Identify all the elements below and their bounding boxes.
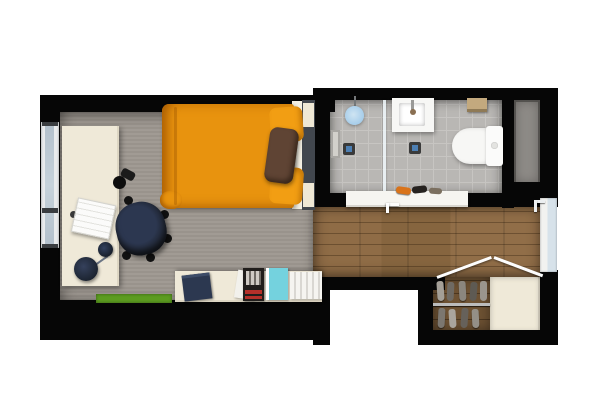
nightstand-top <box>303 103 314 127</box>
window-mullion-top <box>42 122 58 126</box>
drain-grate <box>346 146 352 152</box>
white-book-row <box>290 272 322 299</box>
window-pane <box>45 125 54 245</box>
navy-books <box>182 272 213 301</box>
shoe <box>469 282 477 301</box>
shoe <box>460 308 468 328</box>
flush-button <box>491 142 498 149</box>
shower-drain <box>343 143 355 155</box>
hallway-wood-floor <box>313 205 542 277</box>
faucet-handle <box>410 109 416 115</box>
closet-cabinet <box>490 277 540 332</box>
door-handle <box>534 200 548 214</box>
shoe-gray <box>429 188 442 195</box>
camera <box>113 169 137 189</box>
sneaker-orange <box>396 186 412 195</box>
shoe <box>437 308 445 328</box>
duvet-fold <box>160 191 182 209</box>
desk-lamp <box>74 240 114 286</box>
wall-hook <box>386 203 402 213</box>
shoes-on-bench <box>396 183 446 199</box>
magazine-red-title <box>245 290 262 294</box>
nightstand-bottom <box>303 183 314 207</box>
floor-drain <box>409 142 421 154</box>
service-shaft <box>514 100 540 184</box>
closet-rail <box>433 303 490 306</box>
window-mullion-middle <box>42 208 58 213</box>
shoe <box>480 281 487 301</box>
wall-bathroom-top <box>313 88 558 100</box>
cyan-book <box>266 268 288 300</box>
wall-right-top <box>540 88 558 198</box>
shoe-black <box>412 185 428 194</box>
shoe <box>448 309 456 328</box>
shoe <box>472 309 480 328</box>
shower-glass-partition <box>383 100 386 195</box>
lamp-base <box>74 257 98 281</box>
magazine-red-title <box>245 296 262 299</box>
shoe <box>436 281 444 301</box>
handle-stem <box>534 200 537 212</box>
toilet-shelf <box>467 98 487 112</box>
wall-bathroom-shaft <box>502 88 514 208</box>
shower-head <box>345 106 364 125</box>
duvet-crease <box>174 107 177 205</box>
magazine-photo <box>246 271 261 285</box>
hook-drop <box>386 203 389 213</box>
drain-grate <box>412 145 418 151</box>
magazine <box>243 268 264 301</box>
shoe <box>458 281 466 301</box>
toilet-cistern <box>486 126 503 166</box>
green-mat <box>96 294 172 303</box>
wall-bedroom-bottom <box>40 300 330 340</box>
shoe <box>447 282 455 301</box>
floor-plan <box>0 0 600 420</box>
washbasin <box>392 98 434 132</box>
window-mullion-bottom <box>42 244 58 248</box>
bed <box>160 99 316 211</box>
wall-closet-bottom <box>418 330 558 345</box>
chair-caster <box>146 253 155 262</box>
shower-niche <box>331 130 340 158</box>
window <box>41 122 59 248</box>
